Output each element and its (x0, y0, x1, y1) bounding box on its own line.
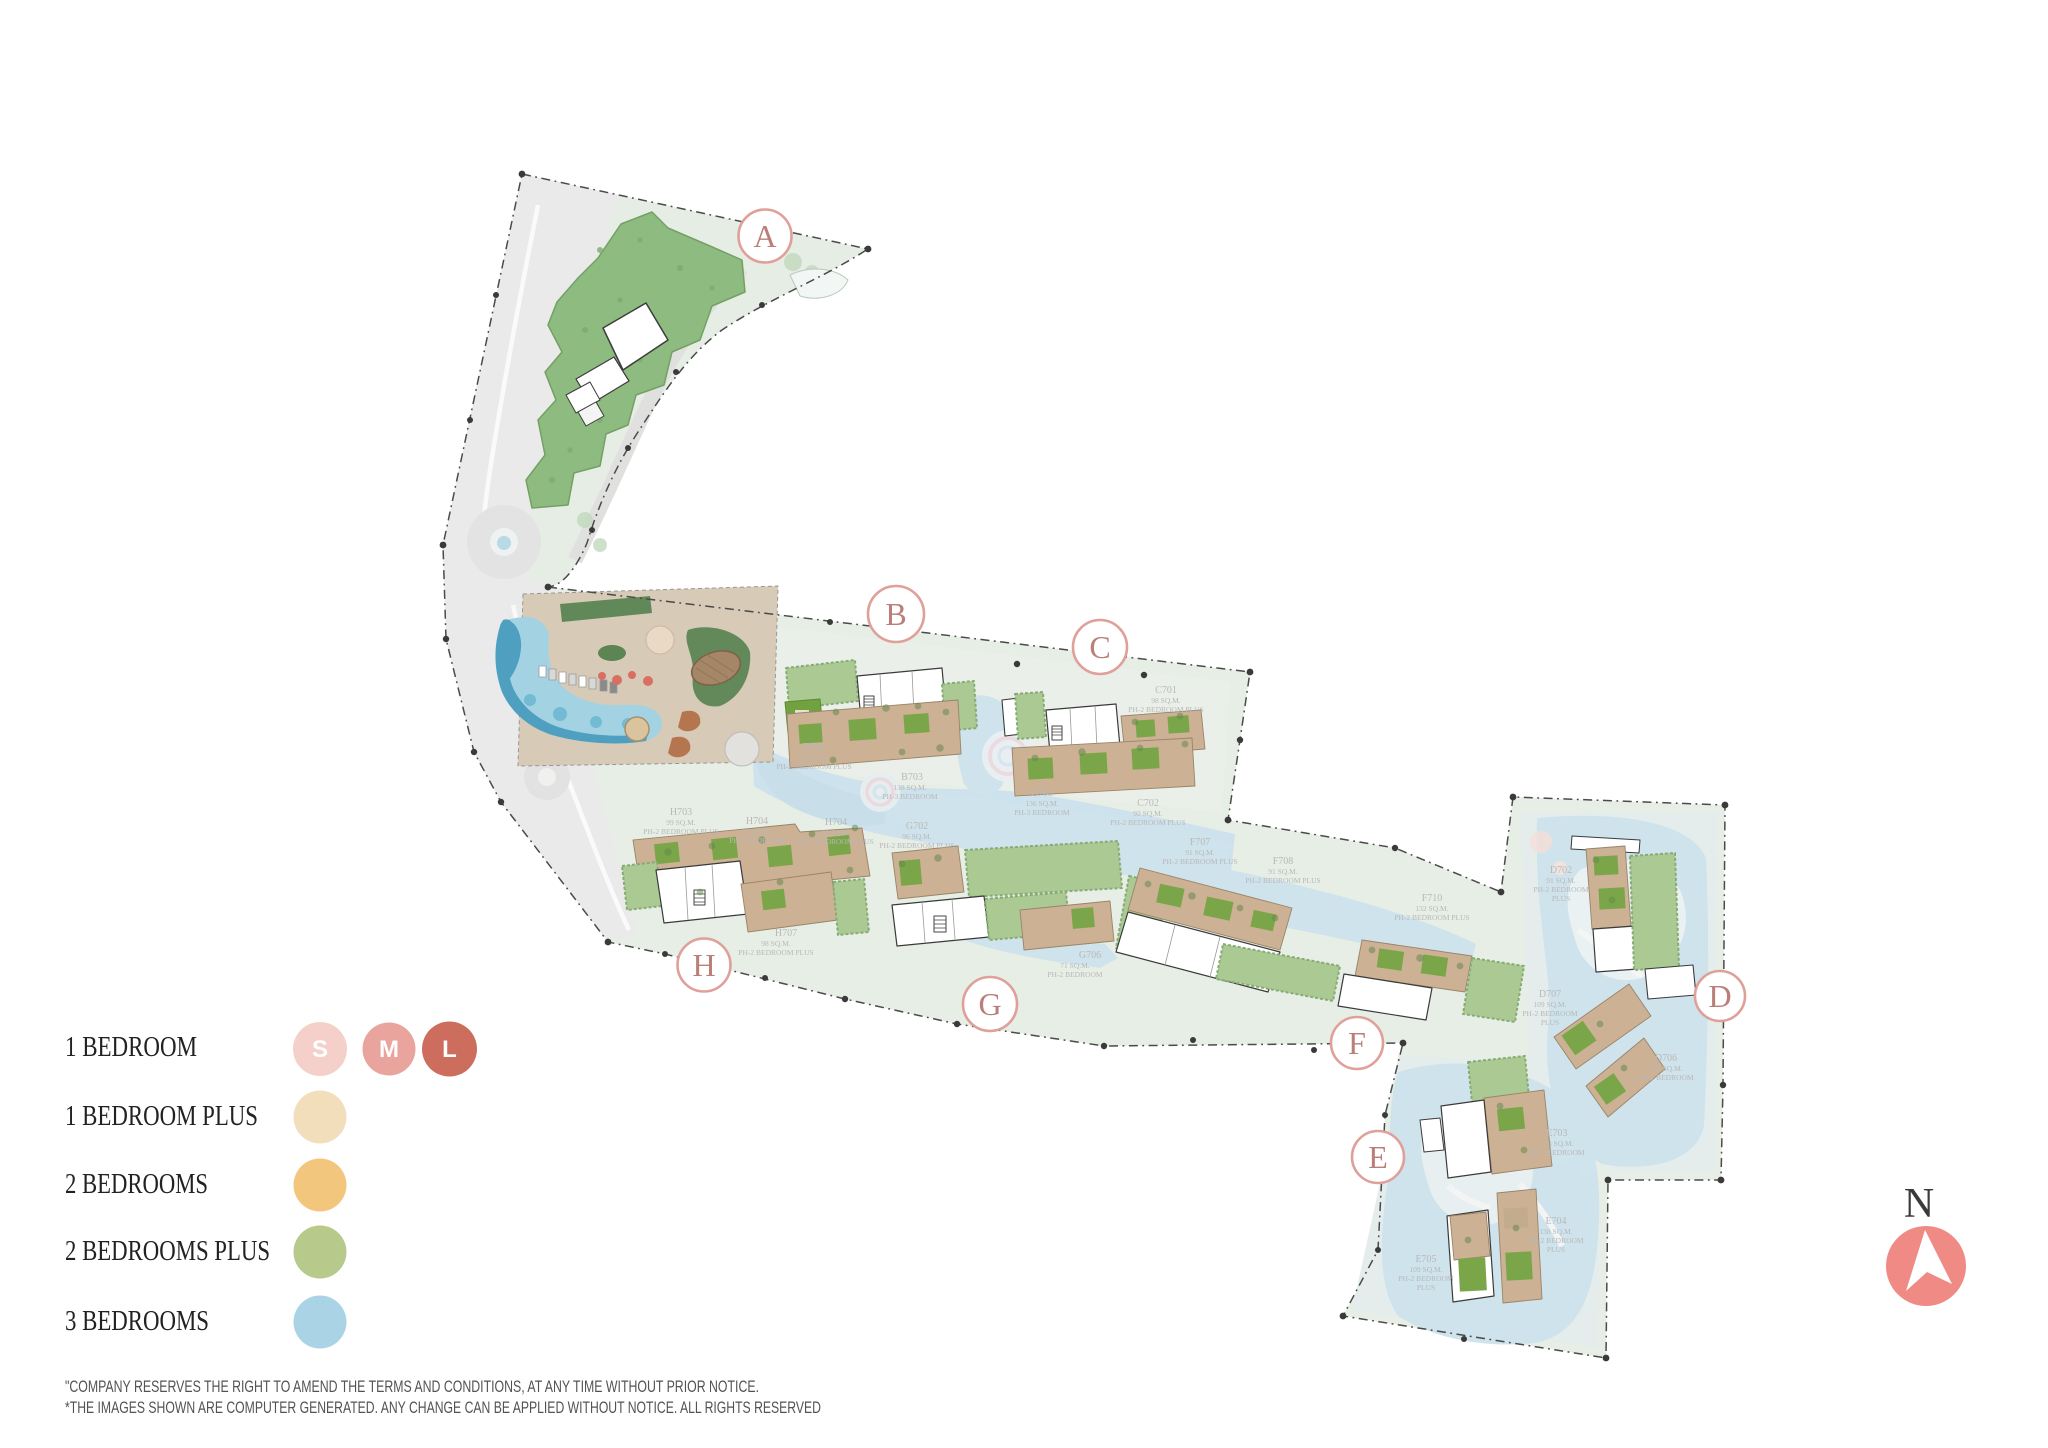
svg-text:M: M (379, 1036, 399, 1063)
svg-text:S: S (312, 1036, 328, 1063)
svg-text:*THE IMAGES SHOWN ARE COMPUTER: *THE IMAGES SHOWN ARE COMPUTER GENERATED… (65, 1398, 821, 1417)
svg-text:2 BEDROOMS: 2 BEDROOMS (65, 1169, 208, 1200)
svg-text:H: H (692, 947, 715, 983)
svg-text:F: F (1348, 1025, 1366, 1061)
svg-text:"COMPANY RESERVES THE RIGHT TO: "COMPANY RESERVES THE RIGHT TO AMEND THE… (65, 1377, 759, 1396)
svg-text:L: L (442, 1036, 457, 1063)
svg-text:E: E (1368, 1139, 1388, 1175)
svg-text:2 BEDROOMS PLUS: 2 BEDROOMS PLUS (65, 1236, 270, 1267)
svg-text:3 BEDROOMS: 3 BEDROOMS (65, 1306, 209, 1337)
svg-text:A: A (753, 218, 776, 254)
svg-text:N: N (1904, 1181, 1934, 1227)
svg-text:1 BEDROOM: 1 BEDROOM (65, 1032, 197, 1063)
svg-text:1 BEDROOM PLUS: 1 BEDROOM PLUS (65, 1101, 258, 1132)
svg-text:D: D (1708, 978, 1731, 1014)
svg-text:G: G (978, 986, 1001, 1022)
svg-text:B: B (885, 596, 906, 632)
svg-text:C: C (1089, 629, 1110, 665)
